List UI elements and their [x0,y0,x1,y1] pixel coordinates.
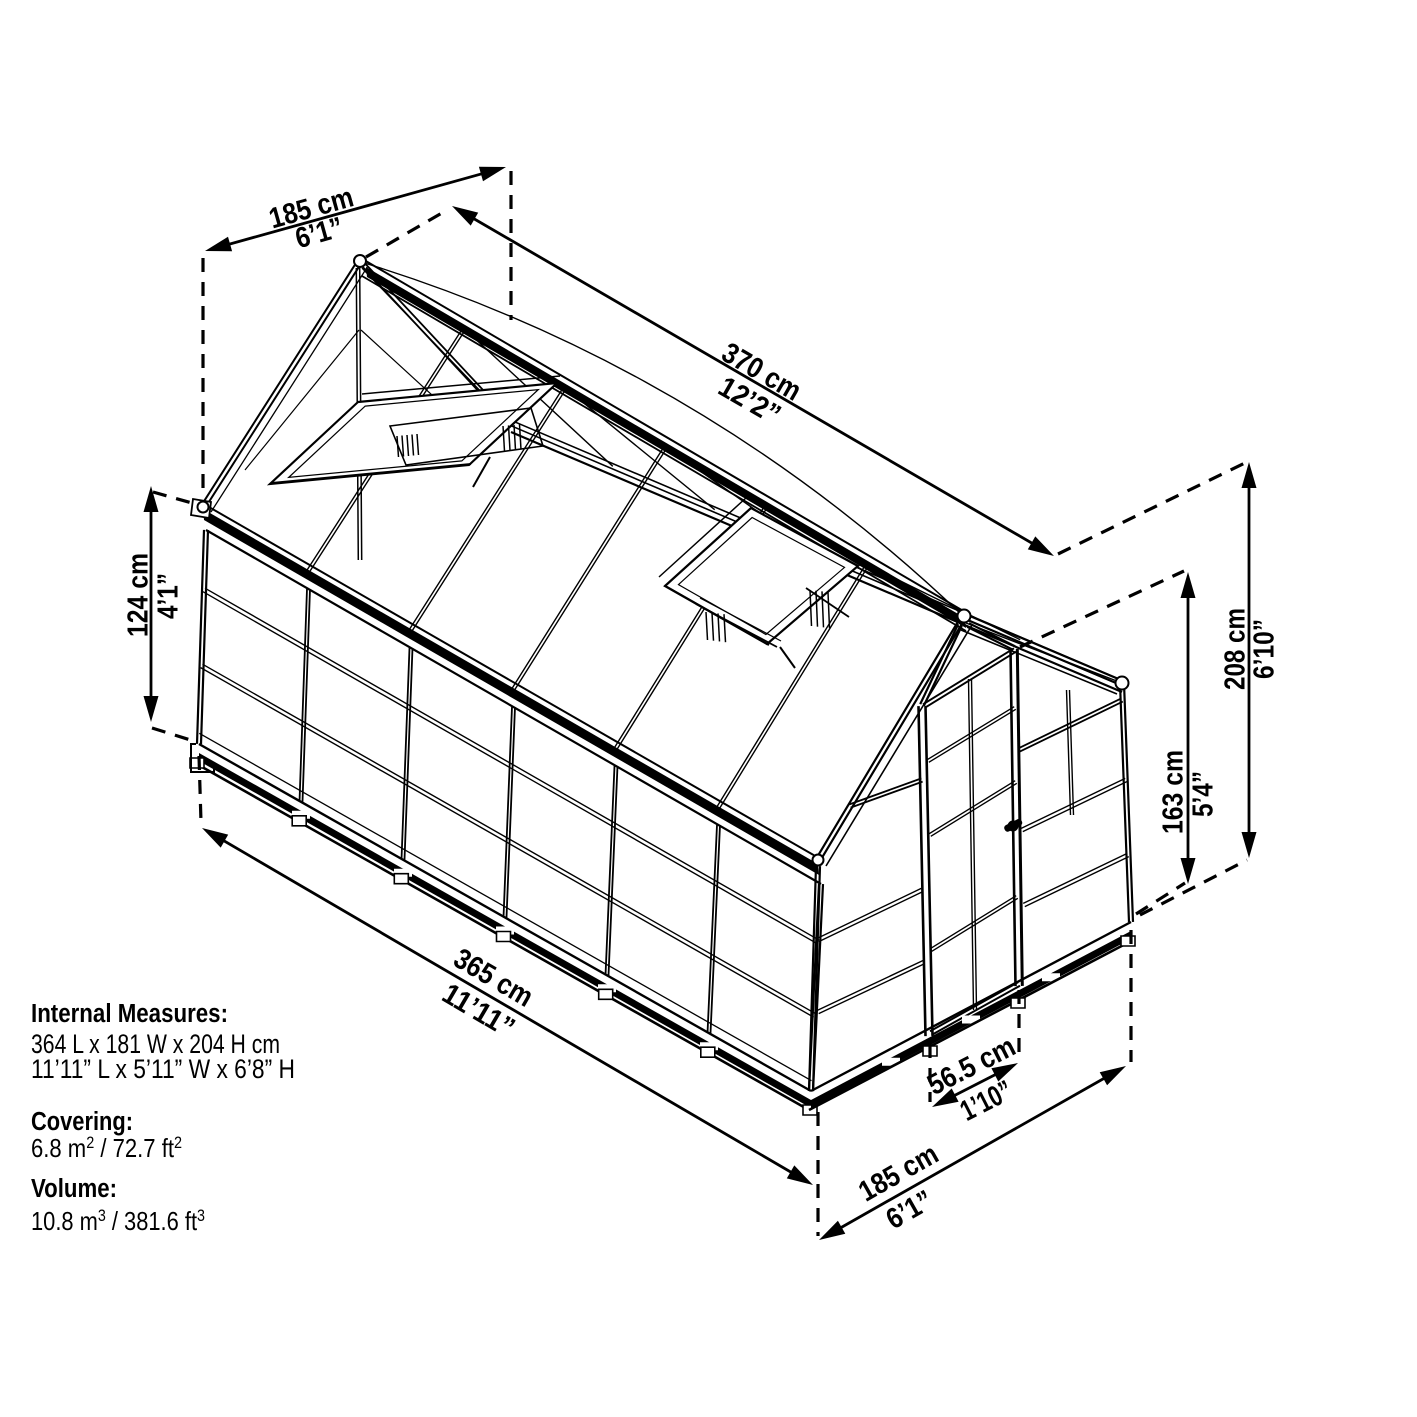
svg-text:6’10”: 6’10” [1248,619,1280,679]
svg-text:6.8 m2 / 72.7 ft2: 6.8 m2 / 72.7 ft2 [31,1133,182,1163]
svg-text:Internal Measures:: Internal Measures: [31,1000,228,1028]
svg-text:11’11” L x 5’11” W x 6’8” H: 11’11” L x 5’11” W x 6’8” H [31,1054,295,1084]
svg-text:Covering:: Covering: [31,1108,133,1136]
svg-text:124 cm: 124 cm [122,553,154,637]
svg-text:163 cm: 163 cm [1157,750,1189,834]
svg-text:208 cm: 208 cm [1219,608,1251,690]
svg-text:5’4”: 5’4” [1187,771,1219,817]
svg-text:Volume:: Volume: [31,1175,117,1203]
svg-text:4’1”: 4’1” [152,573,184,619]
svg-text:10.8 m3 / 381.6 ft3: 10.8 m3 / 381.6 ft3 [31,1206,205,1236]
